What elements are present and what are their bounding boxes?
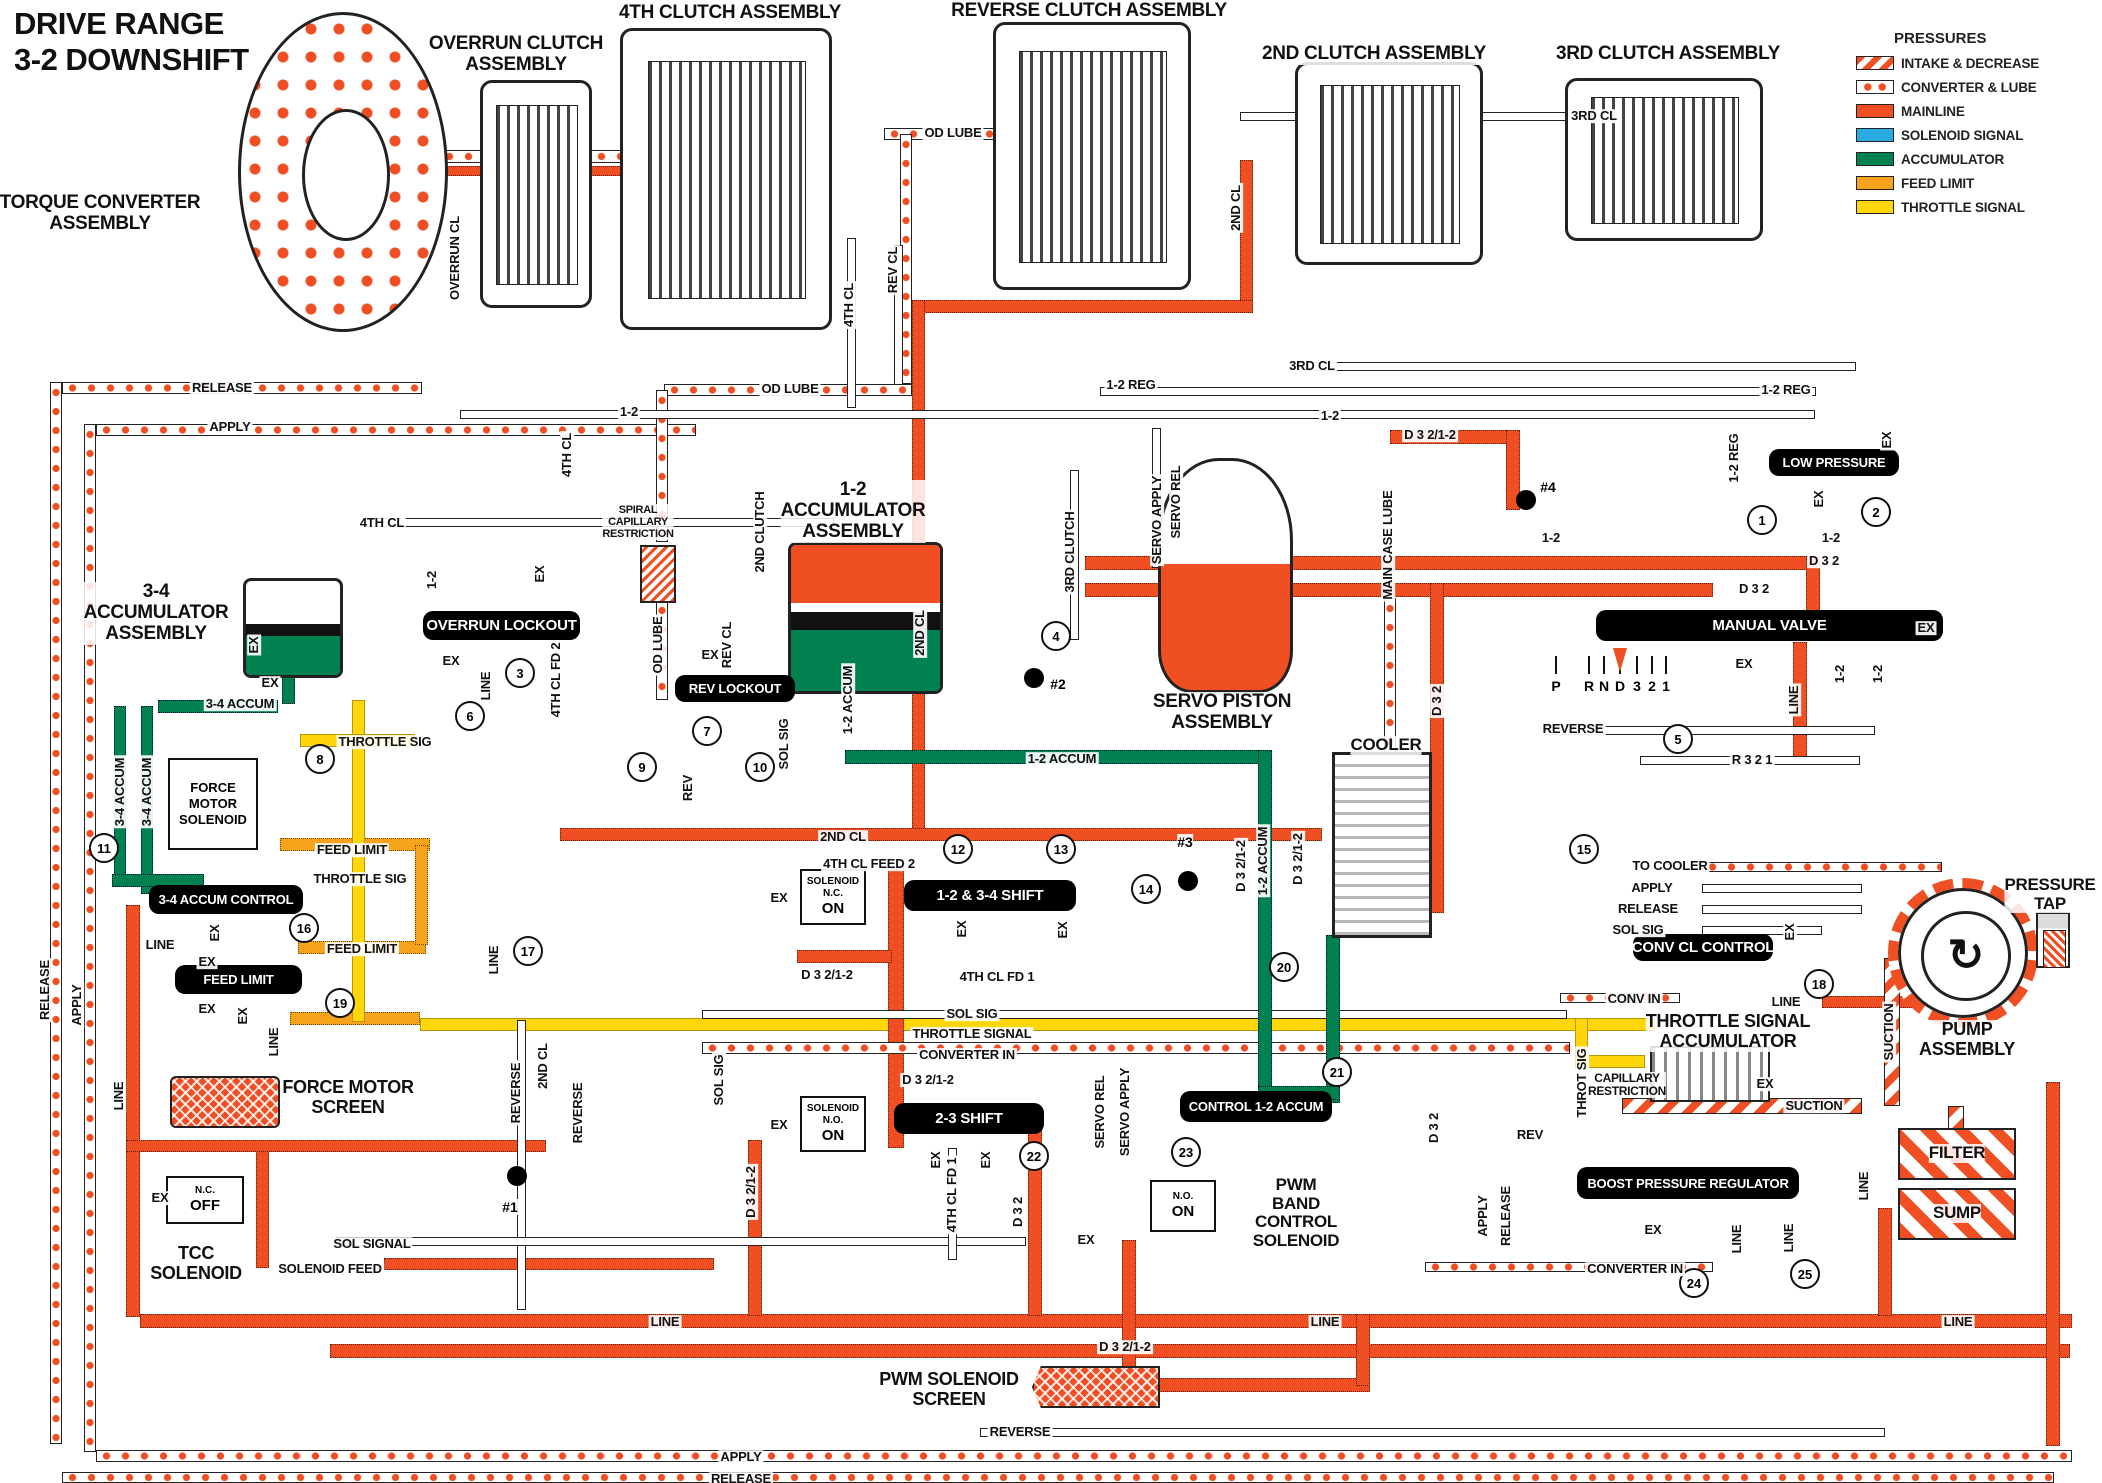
checkball-number-8: 8: [305, 744, 335, 774]
valve-rev-lockout: REV LOCKOUT: [676, 676, 794, 701]
line-label-solenoid-feed: SOLENOID FEED: [276, 1262, 384, 1276]
gear-tick: [1555, 656, 1557, 674]
pipe-main: [126, 905, 140, 1317]
pipe-main: [1878, 1208, 1892, 1316]
torque-converter-icon: [238, 12, 448, 332]
solenoid-label: N.C.: [195, 1186, 215, 1197]
pipe-thin: [1702, 884, 1862, 893]
line-label-r-3-2-1: R 3 2 1: [1730, 753, 1775, 767]
line-label-release: RELEASE: [709, 1472, 773, 1483]
line-label-line: LINE: [1942, 1315, 1975, 1329]
assembly-label-3rd-clutch-assembly: 3RD CLUTCH ASSEMBLY: [1556, 44, 1780, 65]
page-title: DRIVE RANGE 3-2 DOWNSHIFT: [14, 6, 249, 77]
pipe-main: [912, 300, 1253, 313]
line-label-2nd-clutch: 2ND CLUTCH: [753, 489, 767, 574]
checkball-number-5: 5: [1663, 724, 1693, 754]
checkball-number-17: 17: [513, 936, 543, 966]
checkball-number-15: 15: [1569, 834, 1599, 864]
line-label-converter-in: CONVERTER IN: [917, 1048, 1017, 1062]
checkball-number-16: 16: [289, 913, 319, 943]
line-label-line: LINE: [649, 1315, 682, 1329]
pwm-solenoid-screen-icon: [1032, 1366, 1160, 1408]
solenoid-box-2: N.C.OFF: [166, 1176, 244, 1224]
solenoid-box-0: SOLENOIDN.C.ON: [800, 869, 866, 925]
pipe-dots: [50, 382, 62, 1444]
checkball-number-12: 12: [943, 834, 973, 864]
assembly-label-pwm-solenoid: PWM SOLENOID SCREEN: [879, 1370, 1018, 1410]
legend-label: THROTTLE SIGNAL: [1901, 200, 2025, 215]
title-line-2: 3-2 DOWNSHIFT: [14, 42, 249, 78]
legend-label: ACCUMULATOR: [1901, 152, 2004, 167]
checkball-number-14: 14: [1131, 874, 1161, 904]
checkball-number-18: 18: [1804, 969, 1834, 999]
legend-item-intake-decrease: INTAKE & DECREASE: [1856, 51, 2100, 75]
line-label-ex: EX: [150, 1191, 171, 1205]
line-label-sol-sig: SOL SIG: [944, 1007, 999, 1021]
legend-swatch-solid-icon: [1856, 176, 1894, 190]
valve-1-2-3-4-shift: 1-2 & 3-4 SHIFT: [905, 881, 1075, 910]
line-label-2nd-cl: 2ND CL: [913, 608, 927, 658]
line-label-servo-apply: SERVO APPLY: [1150, 474, 1164, 566]
line-label-d-3-2-1-2: D 3 2/1-2: [1234, 838, 1248, 894]
solenoid-state: ON: [822, 900, 845, 917]
line-label-od-lube: OD LUBE: [922, 126, 983, 140]
solenoid-label: N.C.: [823, 889, 843, 900]
line-label-d-3-2-1-2: D 3 2/1-2: [799, 968, 855, 982]
valve-boost-pressure-regulator: BOOST PRESSURE REGULATOR: [1578, 1168, 1798, 1198]
line-label-overrun-cl: OVERRUN CL: [448, 214, 462, 302]
line-label-4th-cl: 4TH CL: [358, 516, 406, 530]
checkball-number-4: 4: [1041, 621, 1071, 651]
line-label-1-2-accum: 1-2 ACCUM: [1026, 752, 1099, 766]
line-label-line: LINE: [1787, 684, 1801, 717]
legend: PRESSURES INTAKE & DECREASECONVERTER & L…: [1856, 30, 2100, 219]
line-label-1-2: 1-2: [1871, 663, 1885, 685]
checkball-number-2: 2: [1861, 497, 1891, 527]
line-label-apply: APPLY: [718, 1450, 763, 1464]
line-label-line: LINE: [144, 938, 177, 952]
line-label-d-3-2: D 3 2: [1011, 1195, 1025, 1229]
line-label-ex: EX: [1076, 1233, 1097, 1247]
assembly-label-pressure: PRESSURE TAP: [2004, 876, 2095, 913]
line-label-reverse: REVERSE: [509, 1061, 523, 1126]
force-motor-label: MOTOR: [189, 796, 237, 812]
line-label-line: LINE: [487, 944, 501, 977]
gear-letter-N: N: [1599, 678, 1609, 694]
line-label-feed-limit: FEED LIMIT: [315, 843, 389, 857]
legend-label: SOLENOID SIGNAL: [1901, 128, 2023, 143]
line-label-servo-rel: SERVO REL: [1093, 1073, 1107, 1150]
line-label-rev-cl: REV CL: [720, 620, 734, 670]
force-motor-label: FORCE: [190, 780, 236, 796]
pipe-main: [330, 1344, 2070, 1358]
gear-letter-P: P: [1551, 678, 1560, 694]
solenoid-label: N.O.: [823, 1116, 844, 1127]
pipe-dots: [96, 424, 696, 436]
line-label-throt-sig: THROT SIG: [1575, 1047, 1589, 1120]
fourth-clutch-icon: [620, 28, 832, 330]
line-label-reverse: REVERSE: [988, 1425, 1053, 1439]
legend-item-converter-lube: CONVERTER & LUBE: [1856, 75, 2100, 99]
line-label-1-2-reg: 1-2 REG: [1104, 378, 1157, 392]
assembly-label-pump: PUMP ASSEMBLY: [1919, 1020, 2015, 1060]
checkball-number-23: 23: [1171, 1137, 1201, 1167]
line-label-1-2: 1-2: [425, 569, 439, 591]
line-label-ex: EX: [533, 564, 547, 585]
pipe-thin: [1702, 926, 1822, 935]
force-motor-solenoid-box: FORCEMOTORSOLENOID: [168, 758, 258, 850]
line-label-line: LINE: [1770, 995, 1803, 1009]
line-label-to-cooler: TO COOLER: [1630, 859, 1709, 873]
line-label-1-2: 1-2: [1820, 531, 1842, 545]
line-label-1-2: 1-2: [1833, 663, 1847, 685]
line-label-release: RELEASE: [190, 381, 254, 395]
line-label-rev: REV: [681, 773, 695, 803]
legend-heading: PRESSURES: [1894, 30, 2100, 47]
pipe-thin: [1100, 387, 1816, 396]
assembly-label-spiral: SPIRAL CAPILLARY RESTRICTION: [602, 504, 673, 540]
line-label-3rd-cl: 3RD CL: [1569, 109, 1619, 123]
line-label-ex: EX: [441, 654, 462, 668]
line-label-ex: EX: [1643, 1223, 1664, 1237]
valve-conv-cl-control: CONV CL CONTROL: [1634, 935, 1772, 960]
legend-swatch-solid-icon: [1856, 104, 1894, 118]
line-label-apply: APPLY: [207, 420, 252, 434]
assembly-label-2nd-clutch-assembly: 2ND CLUTCH ASSEMBLY: [1262, 44, 1486, 65]
line-label-4th-cl: 4TH CL: [842, 281, 856, 329]
legend-label: FEED LIMIT: [1901, 176, 1974, 191]
valve-2-3-shift: 2-3 SHIFT: [895, 1104, 1043, 1133]
gear-letter-D: D: [1615, 678, 1625, 694]
line-label-sol-signal: SOL SIGNAL: [331, 1237, 412, 1251]
checkball-3: [1178, 871, 1198, 891]
checkball-number-6: 6: [455, 701, 485, 731]
checkball-2: [1024, 668, 1044, 688]
pipe-yellow: [420, 1018, 1655, 1031]
line-label-throttle-signal: THROTTLE SIGNAL: [910, 1027, 1033, 1041]
solenoid-label: SOLENOID: [807, 1104, 859, 1115]
reverse-clutch-icon: [993, 22, 1191, 290]
line-label-release: RELEASE: [38, 958, 52, 1022]
line-label-feed-limit: FEED LIMIT: [325, 942, 399, 956]
line-label-4th-cl-feed-2: 4TH CL FEED 2: [821, 857, 917, 871]
line-label-ex: EX: [1734, 657, 1755, 671]
line-label-2nd-cl: 2ND CL: [1229, 183, 1243, 233]
pipe-thin: [1308, 362, 1856, 371]
gear-tick: [1636, 656, 1638, 674]
legend-item-solenoid-signal: SOLENOID SIGNAL: [1856, 123, 2100, 147]
cooler-icon: [1332, 752, 1432, 938]
pipe-main: [256, 1146, 269, 1268]
line-label-release: RELEASE: [1499, 1184, 1513, 1248]
pipe-main: [140, 1314, 2072, 1328]
line-label-ex: EX: [1812, 489, 1826, 510]
line-label-d-3-2: D 3 2: [1430, 684, 1444, 718]
line-label-d-3-2-1-2: D 3 2/1-2: [900, 1073, 956, 1087]
line-label-1-2-accum: 1-2 ACCUM: [1256, 825, 1270, 898]
solenoid-label: SOLENOID: [807, 877, 859, 888]
line-label-od-lube: OD LUBE: [651, 614, 665, 675]
line-label-line: LINE: [1309, 1315, 1342, 1329]
assembly-label-throttle-signal: THROTTLE SIGNAL ACCUMULATOR: [1646, 1012, 1811, 1052]
hydraulic-diagram-canvas: DRIVE RANGE 3-2 DOWNSHIFT PRESSURES INTA…: [0, 0, 2102, 1483]
solenoid-state: ON: [1172, 1203, 1195, 1220]
line-label-sol-sig: SOL SIG: [1610, 923, 1665, 937]
line-label-reverse: REVERSE: [1541, 722, 1606, 736]
line-label-reverse: REVERSE: [571, 1081, 585, 1146]
legend-item-accumulator: ACCUMULATOR: [1856, 147, 2100, 171]
checkball-label-3: #3: [1177, 834, 1193, 850]
line-label-line: LINE: [1730, 1223, 1744, 1256]
line-label-3-4-accum: 3-4 ACCUM: [113, 756, 127, 829]
line-label-rev-cl: REV CL: [886, 245, 900, 295]
pipe-thin: [980, 1428, 1885, 1437]
line-label-sol-sig: SOL SIG: [777, 716, 791, 771]
legend-item-feed-limit: FEED LIMIT: [1856, 171, 2100, 195]
spiral-capillary-restriction-icon: [640, 545, 676, 603]
line-label-rev: REV: [1515, 1128, 1545, 1142]
pipe-main: [384, 1258, 714, 1270]
assembly-label-overrun-clutch: OVERRUN CLUTCH ASSEMBLY: [429, 34, 603, 76]
line-label-d-3-2-1-2: D 3 2/1-2: [1291, 831, 1305, 887]
assembly-label-force-motor: FORCE MOTOR SCREEN: [282, 1078, 413, 1118]
gear-tick: [1665, 656, 1667, 674]
pipe-thin: [1702, 905, 1862, 914]
line-label-line: LINE: [112, 1080, 126, 1113]
assembly-label-filter: FILTER: [1929, 1144, 1985, 1163]
line-label-line: LINE: [1857, 1170, 1871, 1203]
line-label-4th-cl-fd-2: 4TH CL FD 2: [549, 641, 563, 720]
pipe-dots: [84, 424, 96, 1452]
checkball-label-1: #1: [502, 1199, 518, 1215]
line-label-ex: EX: [260, 676, 281, 690]
assembly-label-pwm: PWM BAND CONTROL SOLENOID: [1253, 1176, 1339, 1251]
checkball-4: [1516, 490, 1536, 510]
checkball-number-19: 19: [325, 988, 355, 1018]
line-label-2nd-cl: 2ND CL: [818, 830, 868, 844]
legend-label: MAINLINE: [1901, 104, 1965, 119]
line-label-ex: EX: [1056, 920, 1070, 941]
pipe-main: [126, 1140, 546, 1152]
line-label-1-2: 1-2: [1319, 409, 1341, 423]
second-clutch-icon: [1295, 62, 1483, 265]
line-label-3rd-clutch: 3RD CLUTCH: [1063, 509, 1077, 594]
line-label-line: LINE: [267, 1026, 281, 1059]
solenoid-state: OFF: [190, 1197, 220, 1214]
line-label-3-4-accum: 3-4 ACCUM: [140, 756, 154, 829]
line-label-2nd-cl: 2ND CL: [536, 1041, 550, 1091]
pipe-thin: [336, 1237, 1026, 1246]
pipe-dots: [62, 1472, 2054, 1483]
checkball-number-10: 10: [745, 752, 775, 782]
line-label-1-2: 1-2: [1540, 531, 1562, 545]
pipe-dots: [702, 1042, 1570, 1054]
line-label-apply: APPLY: [1476, 1193, 1490, 1238]
line-label-ex: EX: [1755, 1077, 1776, 1091]
legend-swatch-solid-icon: [1856, 152, 1894, 166]
solenoid-box-1: SOLENOIDN.O.ON: [800, 1096, 866, 1152]
gear-letter-R: R: [1584, 678, 1594, 694]
line-label-line: LINE: [1782, 1222, 1796, 1255]
legend-swatch-dots-icon: [1856, 80, 1894, 94]
line-label-ex: EX: [1916, 621, 1937, 635]
assembly-label-capillary: CAPILLARY RESTRICTION: [1588, 1072, 1666, 1098]
line-label-3rd-cl: 3RD CL: [1287, 359, 1337, 373]
line-label-throttle-sig: THROTTLE SIG: [337, 735, 434, 749]
line-label-d-3-2: D 3 2: [1807, 554, 1841, 568]
line-label-4th-cl: 4TH CL: [560, 431, 574, 479]
pipe-dots: [1702, 862, 1942, 872]
pipe-dots: [96, 1450, 2072, 1462]
valve-low-pressure: LOW PRESSURE: [1770, 450, 1898, 475]
line-label-apply: APPLY: [70, 982, 84, 1027]
pipe-main: [2046, 1082, 2060, 1446]
checkball-number-1: 1: [1747, 505, 1777, 535]
line-label-servo-rel: SERVO REL: [1169, 463, 1183, 540]
assembly-label-tcc: TCC SOLENOID: [150, 1244, 242, 1284]
checkball-number-9: 9: [627, 752, 657, 782]
line-label-d-3-2-1-2: D 3 2/1-2: [1402, 428, 1458, 442]
checkball-number-7: 7: [692, 716, 722, 746]
line-label-ex: EX: [236, 1006, 250, 1027]
pressure-tap-icon: [2036, 912, 2070, 968]
line-label-line: LINE: [479, 670, 493, 703]
line-label-servo-apply: SERVO APPLY: [1118, 1066, 1132, 1158]
checkball-number-11: 11: [89, 833, 119, 863]
legend-swatch-stripes-icon: [1856, 56, 1894, 70]
checkball-number-21: 21: [1322, 1057, 1352, 1087]
assembly-label-sump: SUMP: [1933, 1204, 1981, 1223]
pipe-green: [1258, 750, 1272, 1102]
gear-letter-3: 3: [1633, 678, 1641, 694]
legend-swatch-solid-icon: [1856, 128, 1894, 142]
line-label-apply: APPLY: [1629, 881, 1674, 895]
checkball-1: [507, 1166, 527, 1186]
line-label-ex: EX: [1880, 430, 1894, 451]
overrun-clutch-icon: [480, 80, 592, 308]
assembly-label-torque-converter: TORQUE CONVERTER ASSEMBLY: [0, 193, 200, 235]
checkball-number-13: 13: [1046, 834, 1076, 864]
checkball-number-25: 25: [1790, 1259, 1820, 1289]
line-label-1-2-reg: 1-2 REG: [1727, 431, 1741, 484]
legend-item-throttle-signal: THROTTLE SIGNAL: [1856, 195, 2100, 219]
pipe-main: [1430, 583, 1444, 913]
line-label-d-3-2-1-2: D 3 2/1-2: [744, 1164, 758, 1220]
line-label-ex: EX: [197, 955, 218, 969]
line-label-conv-in: CONV IN: [1606, 992, 1663, 1006]
assembly-label-servo-piston: SERVO PISTON ASSEMBLY: [1153, 692, 1291, 734]
assembly-label-1-2: 1-2 ACCUMULATOR ASSEMBLY: [781, 480, 926, 543]
pipe-thin: [460, 410, 1815, 419]
line-label-ex: EX: [208, 923, 222, 944]
line-label-sol-sig: SOL SIG: [712, 1052, 726, 1107]
force-motor-label: SOLENOID: [179, 812, 247, 828]
line-label-ex: EX: [955, 919, 969, 940]
line-label-d-3-2-1-2: D 3 2/1-2: [1097, 1340, 1153, 1354]
line-label-ex: EX: [979, 1150, 993, 1171]
assembly-label-3-4: 3-4 ACCUMULATOR ASSEMBLY: [84, 582, 229, 645]
pipe-thin: [702, 1010, 1567, 1019]
throttle-signal-accumulator-icon: [1650, 1046, 1770, 1102]
line-label-4th-cl-fd-1: 4TH CL FD 1: [958, 970, 1037, 984]
checkball-number-22: 22: [1019, 1141, 1049, 1171]
line-label-od-lube: OD LUBE: [759, 382, 820, 396]
line-label-1-2-accum: 1-2 ACCUM: [841, 664, 855, 737]
gear-tick: [1603, 656, 1605, 674]
pipe-amber: [415, 845, 428, 945]
valve-manual-valve: MANUAL VALVE: [1597, 611, 1942, 640]
gear-tick: [1588, 656, 1590, 674]
line-label-4th-cl-fd-1: 4TH CL FD 1: [945, 1156, 959, 1235]
legend-swatch-solid-icon: [1856, 200, 1894, 214]
legend-label: INTAKE & DECREASE: [1901, 56, 2039, 71]
line-label-ex: EX: [769, 891, 790, 905]
force-motor-screen-icon: [170, 1076, 280, 1128]
checkball-label-2: #2: [1050, 676, 1066, 692]
valve-control-1-2-accum: CONTROL 1-2 ACCUM: [1181, 1092, 1331, 1121]
line-label-1-2-reg: 1-2 REG: [1759, 383, 1812, 397]
gear-tick: [1651, 656, 1653, 674]
line-label-suction: SUCTION: [1783, 1099, 1844, 1113]
valve-feed-limit: FEED LIMIT: [176, 966, 301, 993]
line-label-converter-in: CONVERTER IN: [1585, 1262, 1685, 1276]
line-label-1-2: 1-2: [618, 405, 640, 419]
valve-3-4-accum-control: 3-4 ACCUM CONTROL: [150, 886, 302, 913]
pipe-main: [797, 950, 892, 963]
line-label-ex: EX: [929, 1150, 943, 1171]
pipe-main: [560, 828, 1322, 841]
line-label-ex: EX: [1783, 922, 1797, 943]
valve-overrun-lockout: OVERRUN LOCKOUT: [424, 612, 579, 639]
title-line-1: DRIVE RANGE: [14, 6, 249, 42]
gear-letter-2: 2: [1648, 678, 1656, 694]
line-label-suction: SUCTION: [1882, 1001, 1896, 1062]
assembly-label-cooler: COOLER: [1351, 736, 1422, 755]
legend-rows: INTAKE & DECREASECONVERTER & LUBEMAINLIN…: [1856, 51, 2100, 219]
line-label-d-3-2: D 3 2: [1737, 582, 1771, 596]
accumulator-3-4-icon: [243, 578, 343, 678]
legend-item-mainline: MAINLINE: [1856, 99, 2100, 123]
line-label-throttle-sig: THROTTLE SIG: [312, 872, 409, 886]
gear-selected-pointer-icon: [1613, 648, 1627, 672]
line-label-main-case-lube: MAIN CASE LUBE: [1381, 488, 1395, 601]
assembly-label-4th-clutch-assembly: 4TH CLUTCH ASSEMBLY: [619, 3, 841, 24]
legend-label: CONVERTER & LUBE: [1901, 80, 2037, 95]
checkball-number-3: 3: [505, 658, 535, 688]
pipe-main: [1356, 1314, 1370, 1386]
checkball-number-20: 20: [1269, 952, 1299, 982]
line-label-d-3-2: D 3 2: [1427, 1111, 1441, 1145]
gear-letter-1: 1: [1662, 678, 1670, 694]
solenoid-box-3: N.O.ON: [1150, 1180, 1216, 1232]
checkball-label-4: #4: [1540, 479, 1556, 495]
line-label-ex: EX: [769, 1118, 790, 1132]
assembly-label-reverse-clutch-assembly: REVERSE CLUTCH ASSEMBLY: [951, 1, 1227, 22]
line-label-ex: EX: [197, 1002, 218, 1016]
third-clutch-icon: [1565, 78, 1763, 241]
line-label-ex: EX: [700, 648, 721, 662]
line-label-ex: EX: [247, 635, 261, 656]
line-label-3-4-accum: 3-4 ACCUM: [204, 697, 277, 711]
solenoid-state: ON: [822, 1127, 845, 1144]
solenoid-label: N.O.: [1173, 1192, 1194, 1203]
line-label-release: RELEASE: [1616, 902, 1680, 916]
